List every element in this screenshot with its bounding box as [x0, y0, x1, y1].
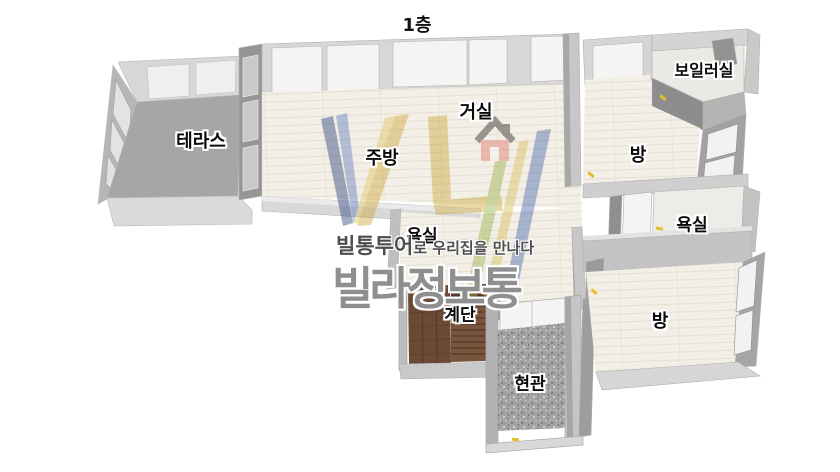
watermark-brand: 빌라정보통	[332, 252, 519, 317]
window	[327, 44, 379, 91]
room-label-room-top-right: 방	[630, 141, 647, 167]
room-bottom-right-structure	[583, 226, 765, 390]
room-label-kitchen: 주방	[365, 144, 398, 170]
window	[736, 260, 757, 312]
floorplan-screen: 1층 테라스 주방 거실 보일러실 방 욕실 욕실 방 계단 현관 빌통투어로 …	[0, 0, 840, 472]
room-label-boiler-room: 보일러실	[675, 57, 734, 81]
terrace-structure	[98, 56, 252, 226]
room-label-room-bottom-right: 방	[652, 307, 669, 333]
kitchen-living-floor	[262, 84, 571, 208]
window	[469, 39, 507, 85]
floor-title: 1층	[402, 11, 431, 37]
window	[531, 36, 564, 82]
window	[272, 46, 322, 93]
room-label-terrace: 테라스	[176, 127, 226, 153]
room-label-living-room: 거실	[459, 98, 492, 124]
room-label-entrance: 현관	[514, 370, 545, 395]
room-label-bath-right: 욕실	[676, 211, 707, 236]
window	[393, 40, 467, 87]
window	[734, 310, 753, 355]
